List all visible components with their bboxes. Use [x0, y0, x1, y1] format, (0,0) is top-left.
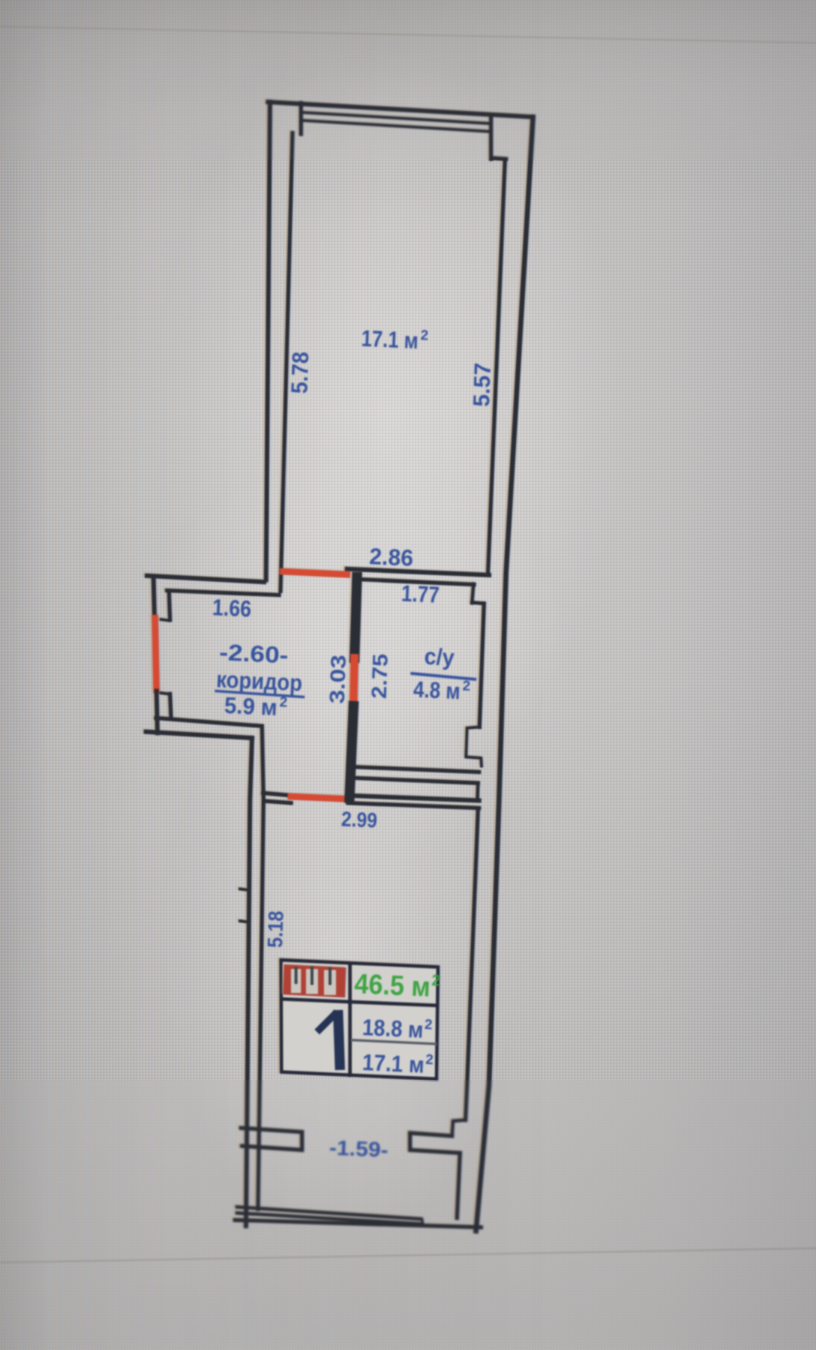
svg-text:2: 2: [462, 677, 471, 693]
svg-text:2: 2: [279, 694, 288, 710]
svg-text:4.8 м: 4.8 м: [413, 676, 461, 704]
svg-text:с/у: с/у: [424, 643, 455, 670]
svg-text:46.5 м: 46.5 м: [354, 968, 431, 1002]
svg-text:5.57: 5.57: [468, 362, 496, 407]
svg-text:5.78: 5.78: [286, 351, 313, 394]
svg-text:5.9 м: 5.9 м: [224, 692, 278, 720]
svg-text:2: 2: [431, 973, 441, 990]
svg-text:17.1 м: 17.1 м: [362, 1049, 425, 1078]
svg-text:18.8 м: 18.8 м: [362, 1014, 424, 1043]
svg-text:17.1 м: 17.1 м: [361, 325, 419, 354]
svg-text:2.86: 2.86: [369, 543, 414, 571]
svg-text:2.75: 2.75: [368, 653, 393, 699]
svg-text:2: 2: [420, 327, 429, 343]
svg-text:2.99: 2.99: [341, 808, 378, 833]
svg-text:2: 2: [425, 1051, 434, 1067]
svg-text:5.18: 5.18: [264, 910, 288, 948]
svg-text:-2.60-: -2.60-: [219, 639, 289, 668]
svg-text:1.77: 1.77: [401, 580, 440, 608]
svg-text:2: 2: [424, 1016, 433, 1032]
svg-text:3.03: 3.03: [326, 654, 351, 704]
svg-text:1.66: 1.66: [212, 594, 252, 622]
